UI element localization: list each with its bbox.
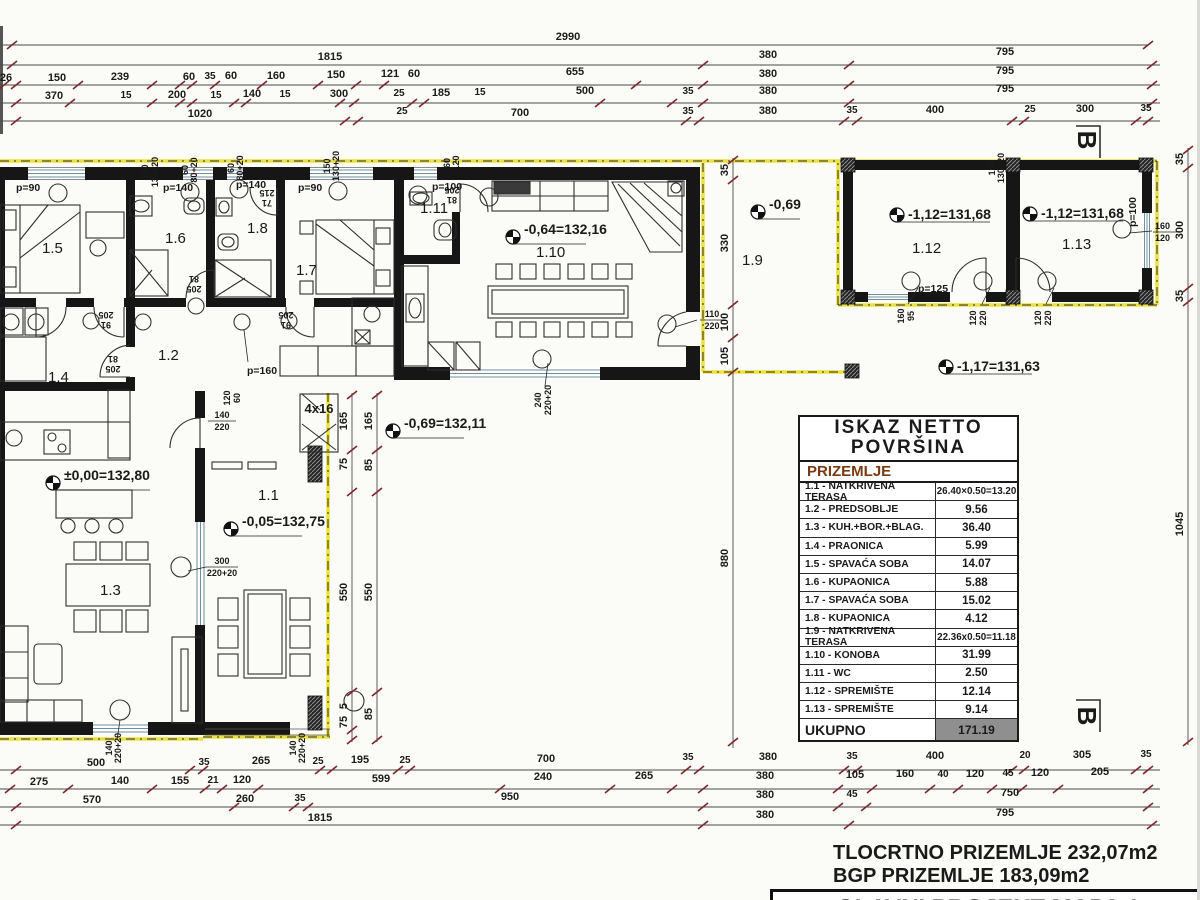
dim-label: 35: [719, 164, 731, 176]
dim-label: 500: [87, 757, 105, 769]
room-label: 1.9: [742, 252, 763, 269]
dim-label: 370: [45, 90, 63, 102]
dim-label: 160: [267, 70, 285, 82]
furniture: [0, 181, 684, 723]
row-label: 1.2 - PREDSOBLJE: [800, 501, 936, 518]
row-label: 1.9 - NATKRIVENA TERASA: [800, 629, 936, 646]
dim-label: 500: [576, 85, 594, 97]
dim-label: 260: [236, 793, 254, 805]
row-value: 14.07: [936, 556, 1017, 573]
dim-label: 35: [682, 86, 694, 97]
dim-label: 795: [996, 46, 1014, 58]
dim-label: 300: [1076, 103, 1094, 115]
dim-label: 155: [171, 775, 189, 787]
dim-label: 795: [996, 65, 1014, 77]
dim-label: 380: [756, 789, 774, 801]
dim-label: 25: [393, 88, 405, 99]
dim-label: 35: [1140, 103, 1152, 114]
window-size-label: 60: [232, 393, 242, 403]
dim-label: 550: [338, 583, 350, 601]
window-size-label: 80+20: [189, 157, 199, 182]
dim-label: 880: [719, 549, 731, 567]
door-width-label: p=100: [1127, 197, 1139, 227]
dim-label: 45: [846, 789, 858, 800]
row-value: 15.02: [936, 592, 1017, 609]
room-label: 1.3: [100, 582, 121, 599]
area-summary-line2: BGP PRIZEMLJE 183,09m2: [833, 865, 1089, 888]
titleblock: GLAVNI PROJEKT MAPA 1: [770, 889, 1200, 900]
dim-label: 380: [759, 751, 777, 763]
row-value: 22.36x0.50=11.18: [936, 629, 1017, 646]
window-size-label: 160: [1155, 221, 1170, 231]
dim-label: 35: [1174, 153, 1186, 165]
dim-label: 15: [474, 87, 486, 98]
window-size-label: 80+20: [235, 155, 245, 180]
door-size-label: 81: [189, 274, 199, 284]
door-size-label: 205: [186, 284, 201, 294]
dim-label: 25: [399, 755, 411, 766]
row-label: 1.11 - WC: [800, 665, 936, 682]
dim-label: 1045: [1174, 512, 1186, 536]
door-width-label: p=90: [16, 182, 40, 194]
table-row: 1.6 - KUPAONICA5.88: [800, 574, 1017, 592]
door-size-label: 220: [1043, 310, 1053, 325]
dim-label: 750: [1001, 787, 1019, 799]
door-size-label: 220+20: [207, 568, 237, 578]
dim-label: 165: [363, 412, 375, 430]
table-row: 1.5 - SPAVAĆA SOBA14.07: [800, 556, 1017, 574]
dim-label: 45: [1002, 768, 1014, 779]
table-row: 1.11 - WC2.50: [800, 665, 1017, 683]
door-size-label: 220: [978, 310, 988, 325]
window-size-label: 120: [1155, 233, 1170, 243]
room-label: 1.12: [912, 240, 941, 257]
room-label: 1.13: [1062, 236, 1091, 253]
total-label: UKUPNO: [800, 719, 936, 740]
dim-label: 105: [719, 347, 731, 365]
dim-label: 380: [759, 49, 777, 61]
row-value: 9.14: [936, 701, 1017, 718]
table-row: 1.2 - PREDSOBLJE9.56: [800, 501, 1017, 519]
dim-label: 200: [168, 89, 186, 101]
window-size-label: 220+20: [113, 733, 123, 763]
window-size-label: 150: [140, 164, 150, 179]
area-table: ISKAZ NETTO POVRŠINA PRIZEMLJE 1.1 - NAT…: [798, 415, 1019, 742]
dim-label: 35: [294, 793, 306, 804]
dim-label: 165: [338, 412, 350, 430]
scanned-floor-plan-sheet: 2990 1815 380 795 26 150 239 60 35 60 16…: [0, 0, 1200, 900]
dim-label: 570: [83, 794, 101, 806]
door-size-label: 205: [278, 310, 293, 320]
window-size-label: 240: [533, 392, 543, 407]
row-value: 5.99: [936, 538, 1017, 555]
door-size-label: 215: [259, 188, 274, 198]
table-row: 1.3 - KUH.+BOR.+BLAG.36.40: [800, 519, 1017, 537]
dim-label: 60: [183, 71, 195, 83]
row-label: 1.3 - KUH.+BOR.+BLAG.: [800, 519, 936, 536]
dim-label: 120: [966, 768, 984, 780]
window-size-label: 220+20: [543, 385, 553, 415]
dim-label: 85: [363, 459, 375, 471]
window-size-label: 120: [222, 390, 232, 405]
dim-label: 265: [252, 755, 270, 767]
dim-label: 40: [937, 769, 949, 780]
dim-label: 380: [756, 770, 774, 782]
row-value: 31.99: [936, 647, 1017, 664]
dim-label: 140: [243, 88, 261, 100]
elevation-label: -1,12=131,68: [1041, 205, 1124, 221]
door-size-label: 220: [214, 422, 229, 432]
door-size-label: 110: [705, 309, 720, 319]
dim-label: 795: [996, 83, 1014, 95]
dimension-chain-right: 35 300 35 1045: [1174, 146, 1193, 746]
elevation-label: -0,64=132,16: [524, 221, 607, 237]
dim-label: 105: [846, 769, 864, 781]
door-size-label: 81: [447, 195, 457, 205]
row-label: 1.8 - KUPAONICA: [800, 610, 936, 627]
room-label: 1.8: [247, 220, 268, 237]
dim-label: 380: [759, 105, 777, 117]
section-marker-top: B: [1072, 126, 1102, 158]
dim-label: 380: [759, 68, 777, 80]
door-width-label: p=125: [918, 283, 948, 295]
elevation-label: -0,69: [769, 196, 801, 212]
row-value: 2.50: [936, 665, 1017, 682]
dim-label: 655: [566, 66, 584, 78]
door-width-label: p=160: [247, 365, 277, 377]
section-marker-bottom: B: [1072, 700, 1102, 732]
door-width-label: p=90: [298, 182, 322, 194]
row-label: 1.6 - KUPAONICA: [800, 574, 936, 591]
dim-label: 75: [338, 458, 350, 470]
dim-label: 380: [756, 809, 774, 821]
dim-label: 300: [1174, 221, 1186, 239]
dim-label: 205: [1091, 766, 1109, 778]
dim-label: 5: [338, 703, 350, 709]
dim-label: 400: [926, 750, 944, 762]
room-label: 1.2: [158, 347, 179, 364]
dim-label: 35: [846, 751, 858, 762]
dim-label: 35: [1174, 290, 1186, 302]
dim-label: 185: [432, 87, 450, 99]
row-label: 1.10 - KONOBA: [800, 647, 936, 664]
row-value: 36.40: [936, 519, 1017, 536]
dim-label: 599: [372, 773, 390, 785]
table-title: ISKAZ NETTO POVRŠINA: [800, 417, 1017, 462]
dim-label: 120: [233, 774, 251, 786]
dim-label: 35: [204, 71, 216, 82]
dim-label: 950: [501, 791, 519, 803]
dim-label: 25: [1024, 104, 1036, 115]
elevation-label: -0,05=132,75: [242, 513, 325, 529]
door-size-label: 91: [101, 320, 111, 330]
area-summary-line1: TLOCRTNO PRIZEMLJE 232,07m2: [833, 842, 1158, 865]
row-label: 1.4 - PRAONICA: [800, 538, 936, 555]
dim-label: 795: [996, 807, 1014, 819]
table-row: 1.7 - SPAVAĆA SOBA15.02: [800, 592, 1017, 610]
table-row: 1.10 - KONOBA31.99: [800, 647, 1017, 665]
dim-label: 150: [48, 72, 66, 84]
dim-label: 85: [363, 708, 375, 720]
dim-label: 240: [534, 771, 552, 783]
door-size-label: 205: [105, 364, 120, 374]
dim-label: 121: [381, 68, 399, 80]
dim-label: 15: [279, 89, 291, 100]
row-label: 1.12 - SPREMIŠTE: [800, 683, 936, 700]
dim-label: 195: [351, 754, 369, 766]
row-value: 5.88: [936, 574, 1017, 591]
dim-label: 60: [408, 68, 420, 80]
titleblock-text: GLAVNI PROJEKT MAPA 1: [836, 895, 1140, 900]
dimension-chain-bottom: 500 35 265 25 195 25 700 35 380 35 400 2…: [0, 749, 1160, 829]
window-size-label: 130+20: [331, 151, 341, 181]
elevation-label: -1,17=131,63: [957, 358, 1040, 374]
stairs-label: 4x16: [305, 401, 334, 416]
total-value: 171.19: [936, 719, 1017, 740]
dimension-chain-middle: 35 330 100 105 880: [719, 156, 738, 748]
dim-label: 35: [1140, 749, 1152, 760]
room-label: 1.6: [165, 230, 186, 247]
row-value: 12.14: [936, 683, 1017, 700]
dim-label: 26: [0, 72, 12, 84]
door-size-label: 300: [214, 556, 229, 566]
door-width-label: p=140: [163, 182, 193, 194]
dim-label: 60: [225, 70, 237, 82]
dim-label: 75: [338, 716, 350, 728]
table-row: 1.1 - NATKRIVENA TERASA26.40×0.50=13.20: [800, 483, 1017, 501]
window-size-label: 130+20: [996, 153, 1006, 183]
dim-label: 265: [635, 770, 653, 782]
room-label: 1.4: [48, 369, 69, 386]
window-size-label: 95: [906, 311, 916, 321]
dim-label: 25: [312, 756, 324, 767]
dim-label: 120: [1031, 767, 1049, 779]
row-value: 9.56: [936, 501, 1017, 518]
dim-label: 35: [846, 105, 858, 116]
dim-label: 2990: [556, 31, 580, 43]
dim-label: 700: [511, 107, 529, 119]
table-total-row: UKUPNO171.19: [800, 719, 1017, 740]
door-size-label: 120: [1033, 310, 1043, 325]
dim-label: 1815: [308, 812, 332, 824]
door-size-label: 120: [968, 310, 978, 325]
window-size-label: 220+20: [297, 733, 307, 763]
row-label: 1.5 - SPAVAĆA SOBA: [800, 556, 936, 573]
table-row: 1.4 - PRAONICA5.99: [800, 538, 1017, 556]
room-label: 1.5: [42, 240, 63, 257]
row-label: 1.7 - SPAVAĆA SOBA: [800, 592, 936, 609]
elevation-label: -0,69=132,11: [404, 415, 486, 431]
room-label: 1.11: [420, 200, 448, 217]
elevation-label: -1,12=131,68: [908, 206, 991, 222]
dim-label: 25: [396, 106, 408, 117]
row-label: 1.13 - SPREMIŠTE: [800, 701, 936, 718]
door-size-label: 220: [704, 321, 719, 331]
door-size-label: 140: [214, 410, 229, 420]
dim-label: 239: [111, 71, 129, 83]
dim-label: 35: [198, 757, 210, 768]
dim-label: 400: [926, 104, 944, 116]
room-label: 1.10: [536, 244, 565, 261]
table-row: 1.13 - SPREMIŠTE9.14: [800, 701, 1017, 719]
door-size-label: 71: [262, 198, 272, 208]
dim-label: 300: [330, 88, 348, 100]
row-label: 1.1 - NATKRIVENA TERASA: [800, 483, 936, 500]
window-size-label: 120: [451, 155, 461, 170]
dim-label: 700: [537, 753, 555, 765]
dim-label: 380: [759, 85, 777, 97]
elevation-label: ±0,00=132,80: [64, 467, 150, 483]
row-value: 4.12: [936, 610, 1017, 627]
row-value: 26.40×0.50=13.20: [936, 483, 1017, 500]
dim-label: 305: [1073, 749, 1091, 761]
dim-label: 550: [363, 583, 375, 601]
dim-label: 35: [682, 106, 694, 117]
table-row: 1.12 - SPREMIŠTE12.14: [800, 683, 1017, 701]
room-label: 1.7: [296, 262, 317, 279]
dim-label: 15: [120, 90, 132, 101]
window-size-label: 130+20: [150, 157, 160, 187]
dimension-chain-terrace: 165 75 550 5 75 165 85 550 85: [338, 391, 382, 744]
floor-plan-drawing: 2990 1815 380 795 26 150 239 60 35 60 16…: [0, 0, 1200, 900]
dim-label: 1020: [188, 108, 212, 120]
dim-label: 330: [719, 234, 731, 252]
dim-label: 21: [207, 775, 219, 786]
dim-label: 35: [682, 752, 694, 763]
dim-label: 1815: [318, 51, 342, 63]
dim-label: 275: [30, 776, 48, 788]
dim-label: 140: [111, 775, 129, 787]
dim-label: 150: [327, 69, 345, 81]
table-row: 1.9 - NATKRIVENA TERASA22.36x0.50=11.18: [800, 629, 1017, 647]
room-label: 1.1: [258, 487, 279, 504]
dim-label: 100: [719, 313, 731, 331]
dim-label: 15: [210, 90, 222, 101]
door-size-label: 91: [281, 320, 291, 330]
dim-label: 20: [1019, 750, 1031, 761]
dim-label: 160: [896, 768, 914, 780]
door-size-label: 205: [98, 310, 113, 320]
door-size-label: 205: [444, 185, 459, 195]
window-size-label: 160: [896, 308, 906, 323]
section-label: B: [1072, 131, 1102, 150]
section-label: B: [1072, 707, 1102, 726]
dimension-chain-top: 2990 1815 380 795 26 150 239 60 35 60 16…: [0, 31, 1160, 125]
door-size-label: 81: [108, 354, 118, 364]
